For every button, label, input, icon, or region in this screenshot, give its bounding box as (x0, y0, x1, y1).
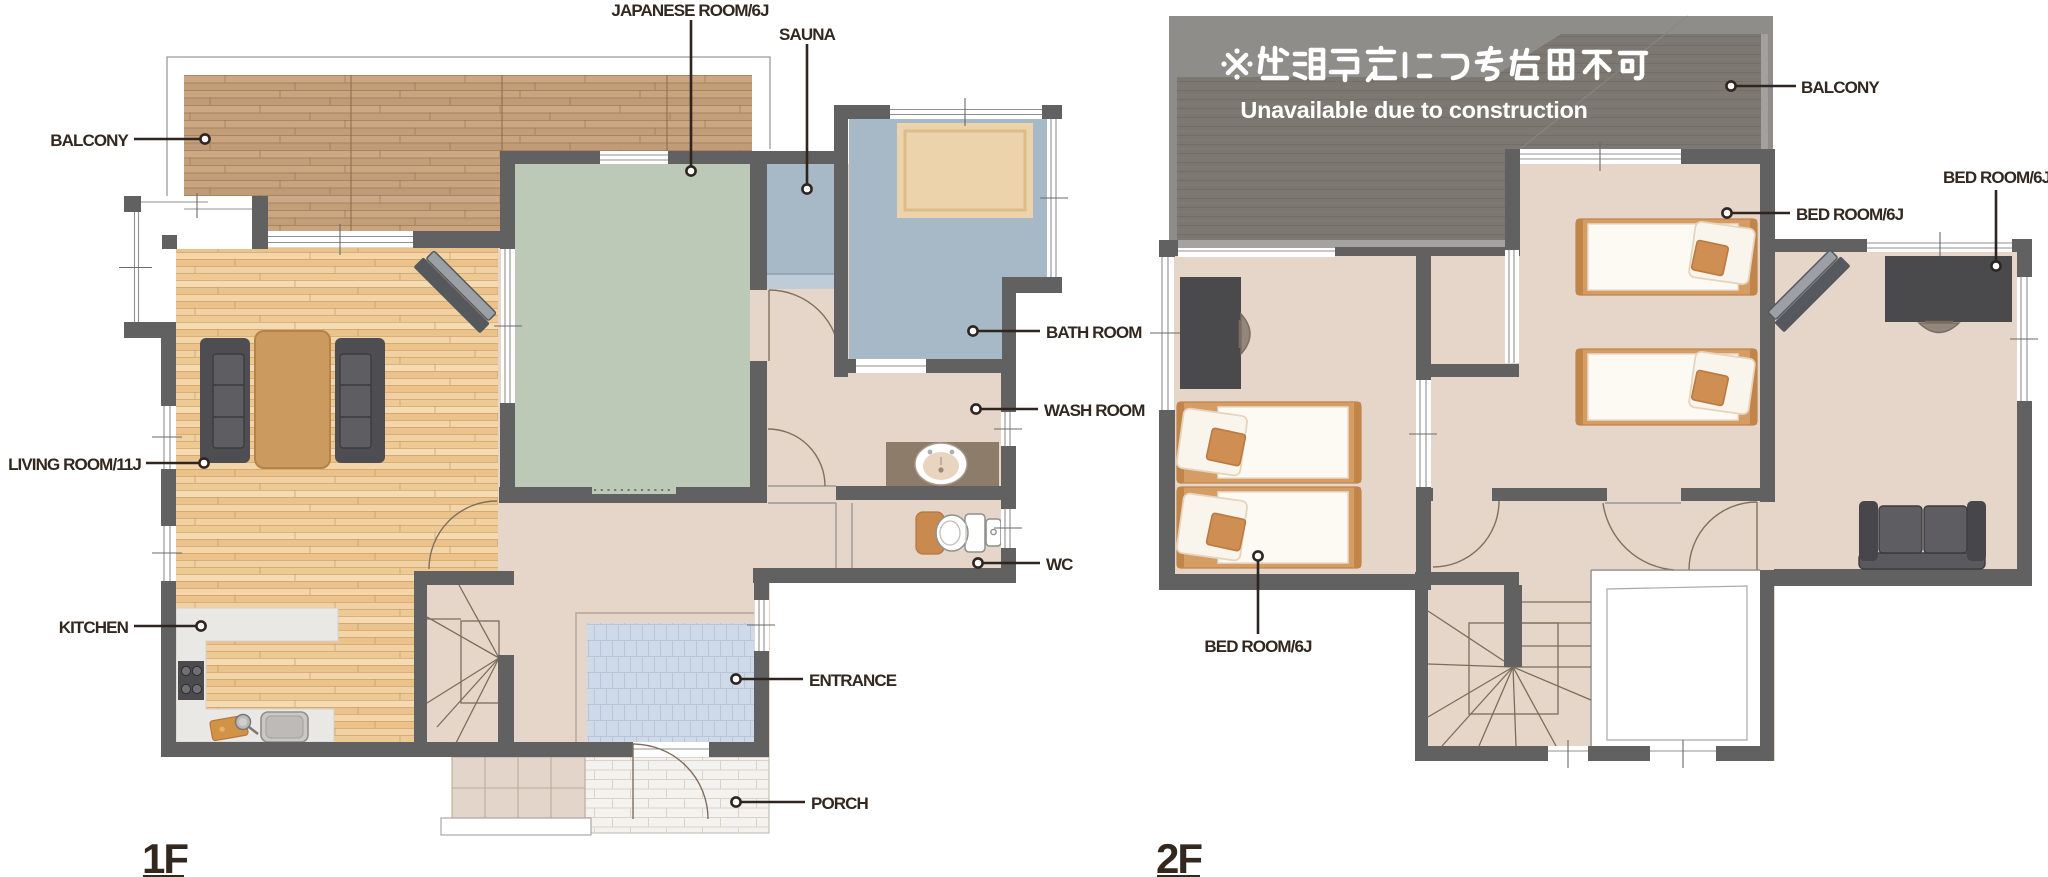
svg-text:BALCONY: BALCONY (1801, 78, 1880, 97)
svg-text:1F: 1F (142, 835, 188, 877)
svg-text:KITCHEN: KITCHEN (59, 618, 129, 637)
svg-text:WC: WC (1046, 555, 1073, 574)
svg-text:LIVING ROOM/11J: LIVING ROOM/11J (8, 455, 141, 474)
svg-text:BALCONY: BALCONY (50, 131, 129, 150)
svg-text:2F: 2F (1156, 835, 1202, 877)
svg-text:BATH ROOM: BATH ROOM (1046, 323, 1142, 342)
svg-text:ENTRANCE: ENTRANCE (809, 671, 897, 690)
svg-text:Unavailable due to constructio: Unavailable due to construction (1240, 97, 1587, 123)
svg-text:WASH ROOM: WASH ROOM (1044, 401, 1145, 420)
svg-text:JAPANESE ROOM/6J: JAPANESE ROOM/6J (611, 1, 769, 20)
svg-text:PORCH: PORCH (811, 794, 869, 813)
svg-text:BED ROOM/6J: BED ROOM/6J (1796, 205, 1904, 224)
svg-text:BED ROOM/6J: BED ROOM/6J (1943, 168, 2048, 187)
svg-text:SAUNA: SAUNA (779, 25, 836, 44)
svg-text:BED ROOM/6J: BED ROOM/6J (1204, 637, 1312, 656)
